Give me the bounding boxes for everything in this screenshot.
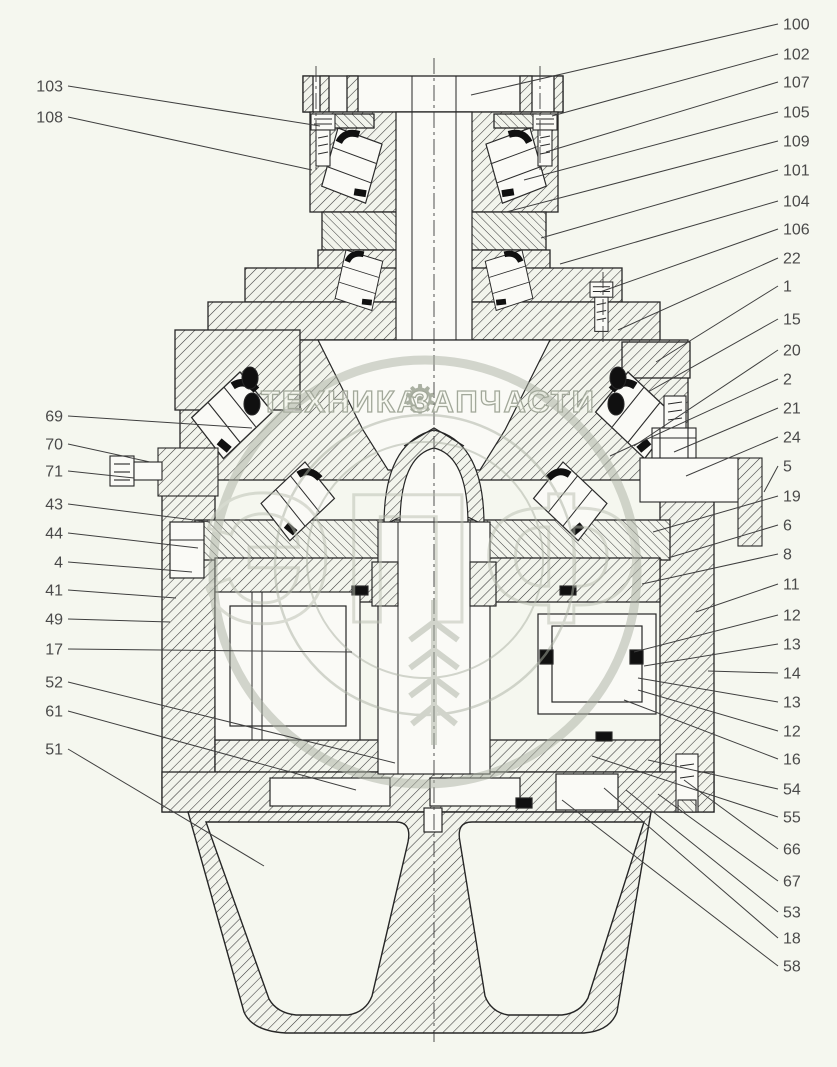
callout-6: 6 [783,518,792,535]
callout-43: 43 [45,497,63,514]
callout-67: 67 [783,874,801,891]
callout-54: 54 [783,782,801,799]
callout-11: 11 [783,577,800,594]
callout-44: 44 [45,526,63,543]
callout-100: 100 [783,17,810,34]
left-bore [170,522,204,578]
callout-102: 102 [783,47,810,64]
seal [244,393,260,415]
watermark-text: ТЕХНИКА ⚙ ЗАПЧАСТИ [261,377,596,423]
callout-69: 69 [45,409,63,426]
callout-55: 55 [783,810,801,827]
callout-108: 108 [36,110,63,127]
callout-52: 52 [45,675,63,692]
leader-line-67 [658,794,778,881]
callout-13: 13 [783,637,801,654]
callout-14: 14 [783,666,801,683]
callout-51: 51 [45,742,63,759]
callout-24: 24 [783,430,801,447]
callout-18: 18 [783,931,801,948]
seal [610,367,626,389]
leader-line-5 [764,466,778,492]
leader-line-100 [471,24,778,95]
callout-106: 106 [783,222,810,239]
leader-line-104 [560,201,778,264]
leader-line-101 [541,170,778,238]
leader-line-49 [68,619,170,622]
callout-61: 61 [45,704,63,721]
callout-12: 12 [783,608,801,625]
callout-20: 20 [783,343,801,360]
callout-12: 12 [783,724,801,741]
leader-line-1 [656,286,778,362]
leader-line-108 [68,117,312,170]
callout-8: 8 [783,547,792,564]
leader-line-105 [524,112,778,180]
callout-1: 1 [783,279,792,296]
callout-41: 41 [45,583,63,600]
seal [242,367,258,389]
callout-22: 22 [783,251,801,268]
callout-16: 16 [783,752,801,769]
leader-line-22 [618,258,778,330]
callout-49: 49 [45,612,63,629]
callout-2: 2 [783,372,792,389]
callout-107: 107 [783,75,810,92]
left-arm-bolt-head [110,456,134,486]
leader-line-70 [68,444,150,462]
cross-section-drawing: ЭПФ ТЕХНИКА ⚙ ЗАПЧАСТИ 10310869707143444… [0,0,837,1067]
center-pin [424,808,442,832]
callout-70: 70 [45,437,63,454]
callout-13: 13 [783,695,801,712]
callout-21: 21 [783,401,801,418]
leader-line-102 [552,54,778,116]
diagram-page: ЭПФ ТЕХНИКА ⚙ ЗАПЧАСТИ 10310869707143444… [0,0,837,1067]
callout-109: 109 [783,134,810,151]
callout-19: 19 [783,489,801,506]
callout-4: 4 [54,555,63,572]
callout-103: 103 [36,79,63,96]
watermark-word-right: ЗАПЧАСТИ [410,384,596,419]
callout-66: 66 [783,842,801,859]
right-arm [640,458,740,502]
watermark-word-left: ТЕХНИКА [261,384,421,419]
leader-line-14 [708,671,778,673]
leader-line-103 [68,86,320,126]
leader-line-41 [68,590,176,598]
callout-15: 15 [783,312,801,329]
callout-53: 53 [783,905,801,922]
callout-101: 101 [783,163,810,180]
callout-104: 104 [783,194,810,211]
leader-line-66 [684,780,778,849]
callout-71: 71 [45,464,63,481]
seal [608,393,624,415]
callout-17: 17 [45,642,63,659]
leader-line-107 [546,82,778,152]
right-hex-bolt-head [652,428,696,458]
leader-line-106 [600,229,778,292]
bottom-bell [188,808,651,1033]
callout-105: 105 [783,105,810,122]
callout-58: 58 [783,959,801,976]
callout-5: 5 [783,459,792,476]
